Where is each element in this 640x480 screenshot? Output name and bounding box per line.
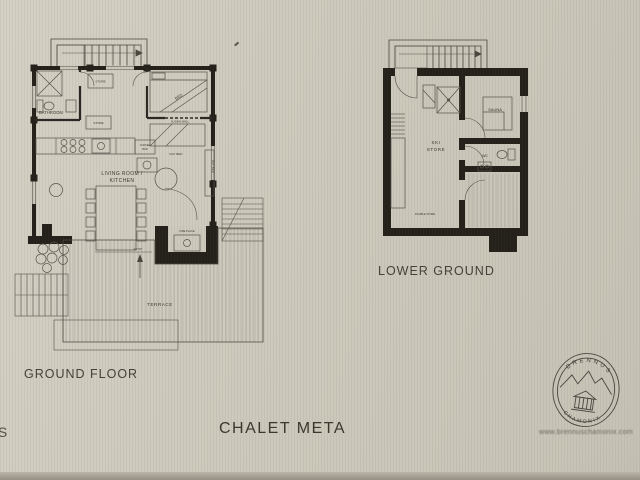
logo-url: www.brennuschamonix.com: [532, 429, 640, 436]
sauna: SAUNA: [483, 97, 512, 130]
fireplace: FIRE PLACE: [155, 226, 218, 264]
entry: ENTRY: [95, 247, 152, 278]
log-pile: [36, 242, 69, 273]
stone-wall: [54, 320, 178, 350]
lower-ground-title: LOWER GROUND: [378, 264, 495, 278]
screen-bottom-edge: [0, 472, 640, 480]
day-bed-side-label: DAY BED: [211, 160, 215, 174]
chalet-title: CHALET META: [219, 420, 346, 438]
ski-store-label2: STORE: [427, 147, 445, 152]
exterior-stair-top: [51, 39, 147, 67]
logo-hut: [571, 389, 598, 412]
lower-stair: [389, 40, 487, 68]
ski-store-label1: SKI: [431, 140, 440, 145]
exterior-stair-right: [222, 198, 263, 241]
brennus-logo: BRENNUS CHAMONIX: [546, 350, 626, 434]
coffee-bar-label1: COFFEE: [140, 143, 151, 147]
bathroom: BATHROOM: [37, 71, 76, 115]
terrace-label: TERRACE: [147, 302, 173, 307]
store-upper-label: STORE: [95, 80, 105, 84]
ground-floor-title-text: GROUND FLOOR: [24, 367, 138, 381]
living-room-label1: LIVING ROOM /: [101, 171, 143, 177]
logo-url-text: www.brennuschamonix.com: [539, 429, 633, 436]
store-closets: STORE STORE: [86, 74, 113, 129]
sliding-wall-label: SLIDING WALL: [171, 120, 190, 124]
bathroom-label: BATHROOM: [39, 110, 63, 115]
kitchen-counter: [36, 138, 135, 154]
shower: [437, 87, 460, 113]
floor-plan-photo: BATHROOM STORE STORE BED SLIDING WALL DA…: [0, 0, 640, 480]
ski-store: SKI STORE DOUBLE STORE: [391, 114, 445, 216]
fire-place-label: FIRE PLACE: [179, 229, 194, 233]
stool: [50, 184, 63, 197]
exterior-stair-left: [15, 274, 68, 316]
lower-closet: [423, 85, 435, 108]
wc-label: WC: [482, 154, 488, 158]
sauna-label: SAUNA: [488, 107, 502, 112]
logo-arc-bottom-text: CHAMONIX: [561, 409, 604, 427]
edge-partial-text-span: IS: [0, 424, 7, 440]
bedroom: BED SLIDING WALL DAY BED: [150, 72, 207, 156]
chalet-title-text: CHALET META: [219, 420, 346, 437]
bedroom-door-arc: [133, 72, 147, 86]
day-bed-label: DAY BED: [170, 152, 184, 156]
lower-window: [520, 96, 528, 112]
svg-text:CHAMONIX: CHAMONIX: [561, 409, 604, 427]
edge-partial-text: IS: [0, 424, 7, 440]
store-lower-label: STORE: [93, 121, 103, 125]
ground-floor-title: GROUND FLOOR: [24, 367, 138, 381]
coffee-bar-label2: BAR: [142, 147, 147, 151]
lower-ground-plan: SKI STORE DOUBLE STORE SAUNA: [375, 30, 540, 265]
round-table: [155, 168, 177, 190]
living-room-label2: KITCHEN: [110, 178, 135, 184]
lower-ground-title-text: LOWER GROUND: [378, 264, 495, 278]
double-store-label: DOUBLE STORE: [415, 212, 436, 216]
ground-floor-plan: BATHROOM STORE STORE BED SLIDING WALL DA…: [10, 28, 280, 368]
coffee-bar: COFFEE BAR: [135, 140, 157, 172]
